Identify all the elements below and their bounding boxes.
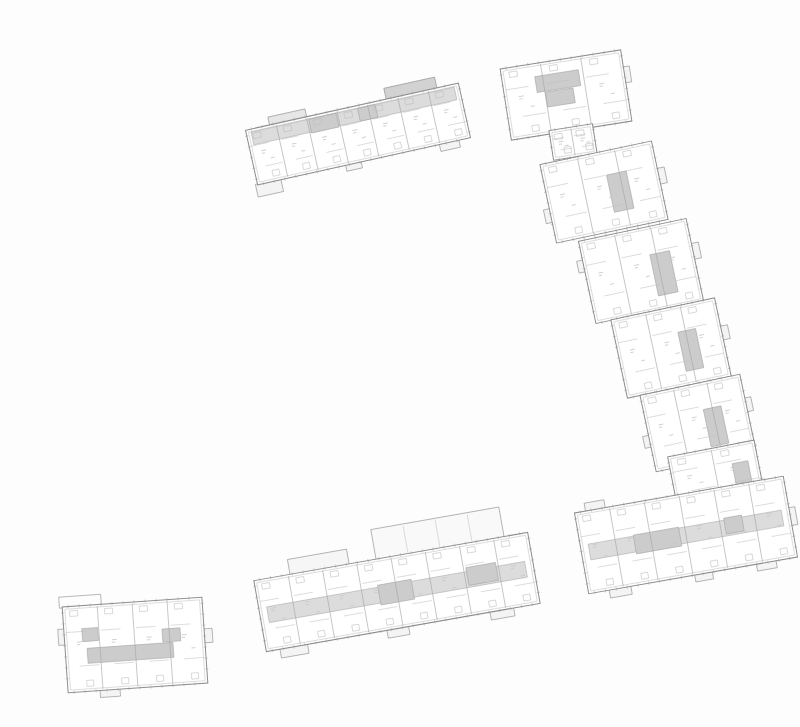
block-southwest-block xyxy=(55,587,216,700)
page xyxy=(0,0,800,727)
block-north-band xyxy=(241,72,475,197)
block-south-band xyxy=(247,503,543,661)
floor-plan-canvas xyxy=(0,0,800,727)
